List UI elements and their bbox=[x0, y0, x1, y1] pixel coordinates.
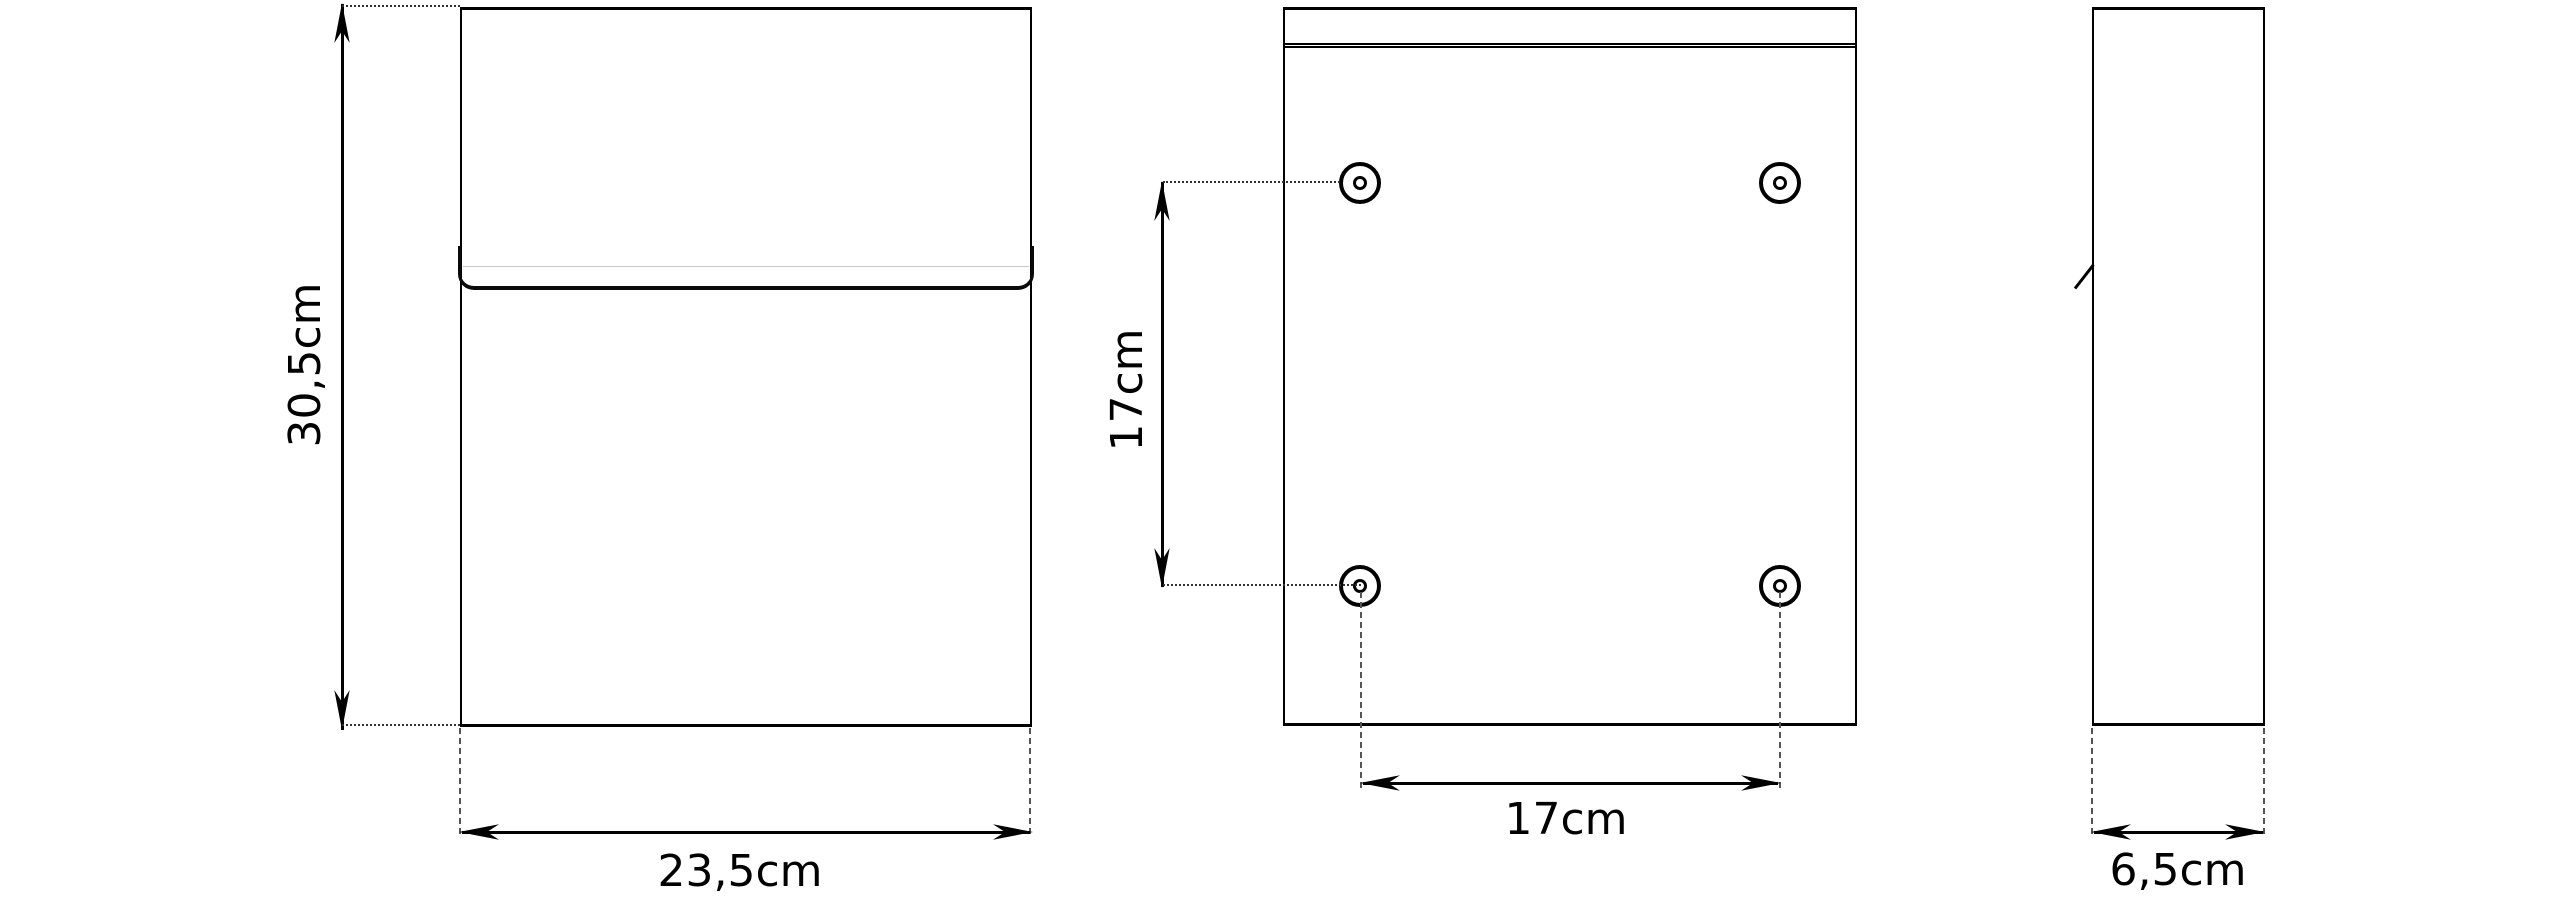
front-width-projection-right bbox=[1029, 728, 1031, 834]
mounting-hole-center bbox=[1353, 176, 1367, 190]
front-bottom-extension-line bbox=[342, 724, 460, 726]
side-depth-label: 6,5cm bbox=[2109, 849, 2246, 893]
side-outline bbox=[2092, 7, 2265, 726]
side-depth-projection-right bbox=[2263, 728, 2265, 834]
front-height-dim-line bbox=[341, 4, 344, 730]
back-top-hole-leader-line bbox=[1163, 181, 1340, 183]
front-width-dim-line bbox=[462, 831, 1030, 834]
front-width-projection-left bbox=[459, 728, 461, 834]
dimension-drawing: 30,5cm 23,5cm 17cm bbox=[0, 0, 2560, 899]
back-horizontal-spacing-label: 17cm bbox=[1504, 798, 1627, 842]
front-height-label: 30,5cm bbox=[284, 282, 328, 447]
back-vertical-dim-line bbox=[1161, 182, 1164, 587]
back-bottom-hole-leader-line bbox=[1163, 584, 1361, 586]
mounting-hole-center bbox=[1353, 579, 1367, 593]
mounting-hole-top-right bbox=[1759, 162, 1801, 204]
back-outline bbox=[1283, 7, 1857, 726]
back-hole-projection-right bbox=[1779, 592, 1781, 788]
back-vertical-spacing-label: 17cm bbox=[1106, 328, 1150, 451]
mounting-hole-top-left bbox=[1339, 162, 1381, 204]
front-flap-edge bbox=[458, 246, 1034, 290]
front-top-extension-line bbox=[342, 5, 460, 7]
back-hole-projection-left bbox=[1360, 592, 1362, 788]
mounting-hole-center bbox=[1773, 176, 1787, 190]
back-horizontal-dim-line bbox=[1363, 782, 1778, 785]
mounting-hole-center bbox=[1773, 579, 1787, 593]
front-width-label: 23,5cm bbox=[657, 850, 822, 894]
front-outline bbox=[460, 7, 1032, 727]
back-top-band-line bbox=[1285, 43, 1855, 48]
side-depth-projection-left bbox=[2091, 728, 2093, 834]
